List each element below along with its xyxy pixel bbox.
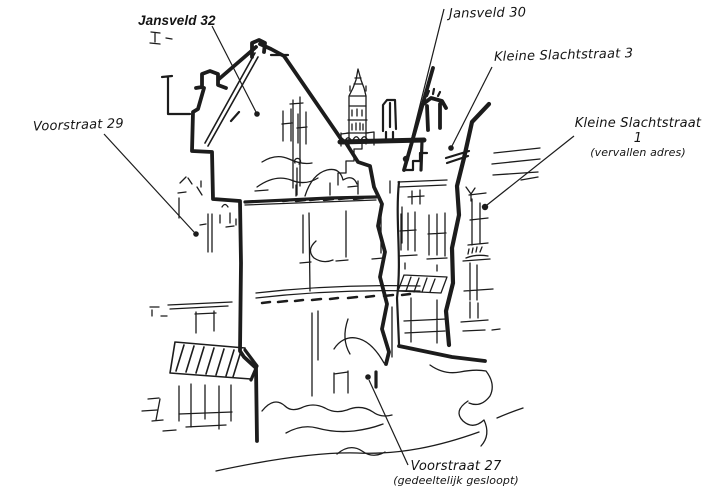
label-jansveld-30: Jansveld 30 — [449, 6, 526, 22]
label-kleine-slachtstraat-1: Kleine Slachtstraat 1 (vervallen adres) — [574, 117, 702, 160]
label-voorstraat-27-subtext: (gedeeltelijk gesloopt) — [386, 475, 526, 488]
voorstraat27-wall-details — [245, 181, 420, 396]
leader-voorstraat-29 — [104, 134, 199, 237]
secondary-outlines — [245, 141, 422, 387]
ink-drawing — [0, 0, 710, 504]
label-voorstraat-29: Voorstraat 29 — [33, 117, 124, 135]
label-voorstraat-27: Voorstraat 27 (gedeeltelijk gesloopt) — [386, 460, 526, 488]
leader-kleine-slachtstraat-1 — [482, 136, 574, 210]
bottom-left-details — [142, 177, 236, 431]
label-kleine-slachtstraat-1-subtext: (vervallen adres) — [574, 147, 702, 160]
right-building-edge — [446, 104, 489, 345]
kleine-slachtstraat1-fragment — [461, 148, 540, 331]
church-tower — [341, 69, 374, 146]
leader-voorstraat-27 — [365, 374, 408, 465]
annotated-building-sketch: Jansveld 32 Jansveld 30 Kleine Slachtstr… — [0, 0, 710, 504]
jansveld30-facade — [398, 180, 447, 343]
label-jansveld-32: Jansveld 32 — [138, 13, 216, 29]
leader-jansveld-32 — [212, 26, 260, 117]
building-outlines — [192, 40, 485, 441]
label-voorstraat-27-text: Voorstraat 27 — [411, 459, 502, 474]
label-kleine-slachtstraat-1-text: Kleine Slachtstraat 1 — [575, 116, 701, 146]
